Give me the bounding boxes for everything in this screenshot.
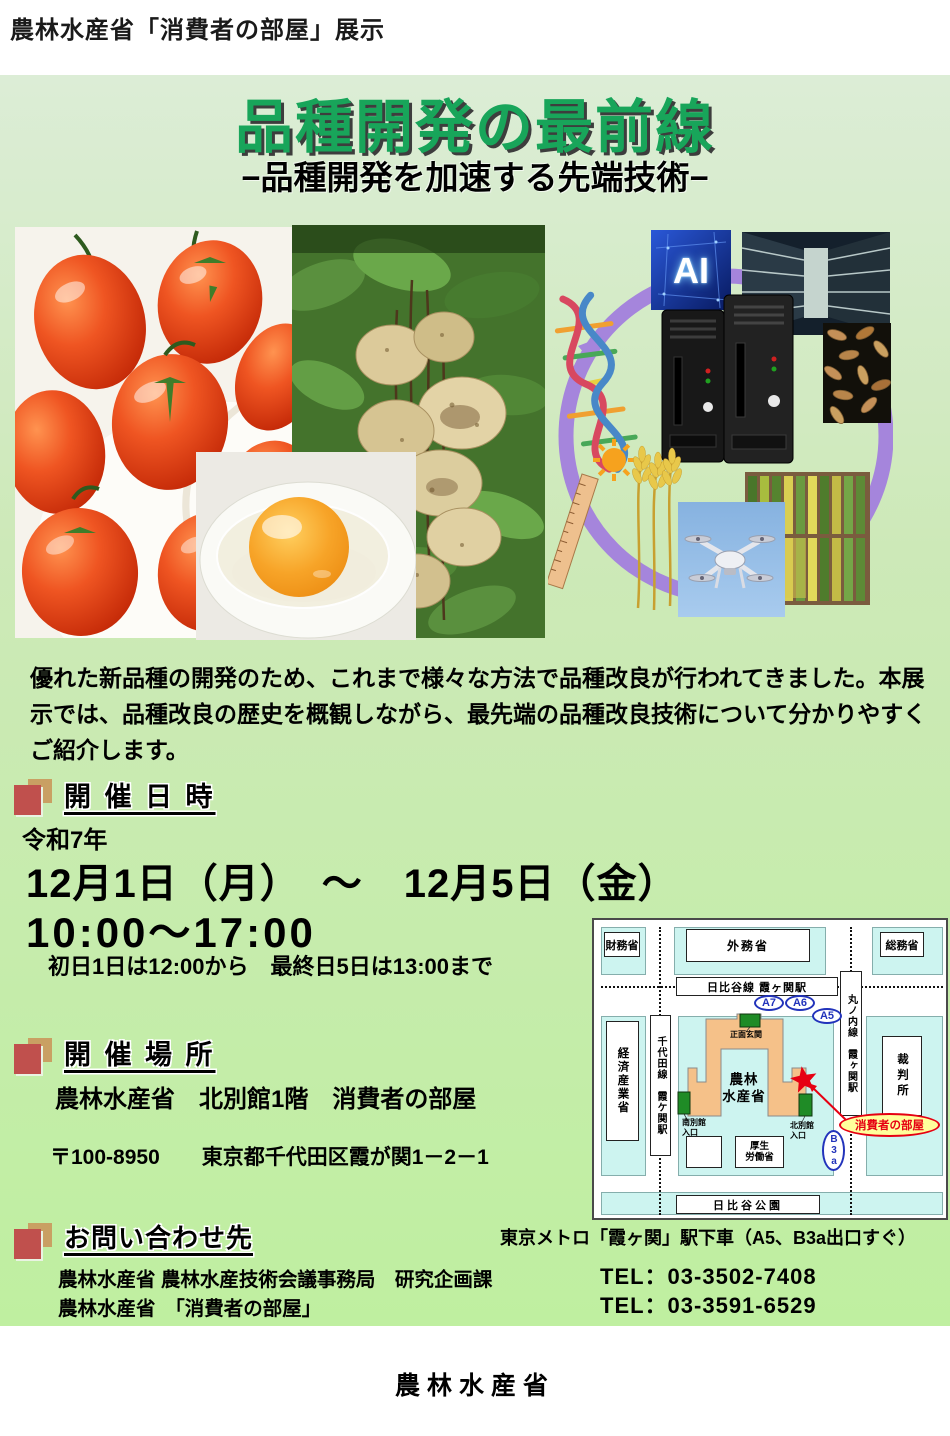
map-exit-b3a: B3a [822, 1130, 845, 1171]
technology-collage: AI [548, 228, 893, 640]
contact-org-2: 農林水産省 「消費者の部屋」 [58, 1292, 321, 1321]
metro-access-note: 東京メトロ「霞ヶ関」駅下車（A5、B3a出口すぐ） [500, 1224, 945, 1250]
venue-heading: 開 催 場 所 [64, 1033, 216, 1072]
map-exit-a5: A5 [812, 1008, 842, 1024]
era-year: 令和7年 [22, 820, 107, 855]
map-exit-a7: A7 [754, 995, 784, 1011]
supercomputer-servers [662, 295, 793, 463]
ai-text: AI [653, 250, 729, 292]
callout-arrow [808, 1083, 846, 1120]
access-map: 財務省 外務省 総務省 経済産業省 裁判所 厚生 労働省 日比谷公園 日比谷線 … [592, 918, 948, 1220]
contact-heading: お問い合わせ先 [64, 1218, 253, 1255]
venue-address: 〒100-8950 東京都千代田区霞が関1－2－1 [50, 1141, 489, 1171]
map-consumer-room-badge: 消費者の部屋 [839, 1113, 940, 1137]
contact-tel-1: TEL：03-3502-7408 [600, 1259, 817, 1291]
contact-tel-2: TEL：03-3591-6529 [600, 1288, 817, 1320]
drone-photo [678, 502, 785, 617]
map-exit-a6: A6 [785, 995, 815, 1011]
page-title: 農林水産省「消費者の部屋」展示 [10, 10, 385, 45]
grain-seeds-photo [822, 323, 892, 426]
egg-yolk-photo [196, 452, 416, 640]
contact-org-1: 農林水産省 農林水産技術会議事務局 研究企画課 [58, 1263, 492, 1292]
map-label-main-entrance: 正面玄関 [723, 1029, 769, 1040]
poster-body: 品種開発の最前線 −品種開発を加速する先端技術− [0, 75, 950, 1326]
section-bullet-icon [14, 779, 54, 817]
map-overlay [594, 920, 950, 1222]
section-bullet-icon [14, 1223, 54, 1261]
section-bullet-icon [14, 1038, 54, 1076]
schedule-heading: 開 催 日 時 [64, 775, 216, 814]
egg-illustration [196, 452, 416, 640]
sun-icon [593, 439, 635, 481]
intro-text: 優れた新品種の開発のため、これまで様々な方法で品種改良が行われてきました。本展示… [30, 660, 936, 768]
poster-subtitle: −品種開発を加速する先端技術− [0, 151, 950, 199]
bullet-square [14, 1044, 41, 1074]
bullet-square [14, 785, 41, 815]
schedule-note: 初日1日は12:00から 最終日5日は13:00まで [48, 949, 493, 981]
footer-ministry-name: 農林水産省 [0, 1366, 950, 1402]
venue-place: 農林水産省 北別館1階 消費者の部屋 [55, 1079, 476, 1114]
poster-page: 農林水産省「消費者の部屋」展示 品種開発の最前線 −品種開発を加速する先端技術− [0, 0, 950, 1436]
map-label-north-annex-entrance: 北別館 入口 [790, 1121, 814, 1141]
map-label-maff: 農林 水産省 [712, 1072, 776, 1106]
bullet-square [14, 1229, 41, 1259]
map-label-south-annex-entrance: 南別館 入口 [682, 1118, 706, 1138]
